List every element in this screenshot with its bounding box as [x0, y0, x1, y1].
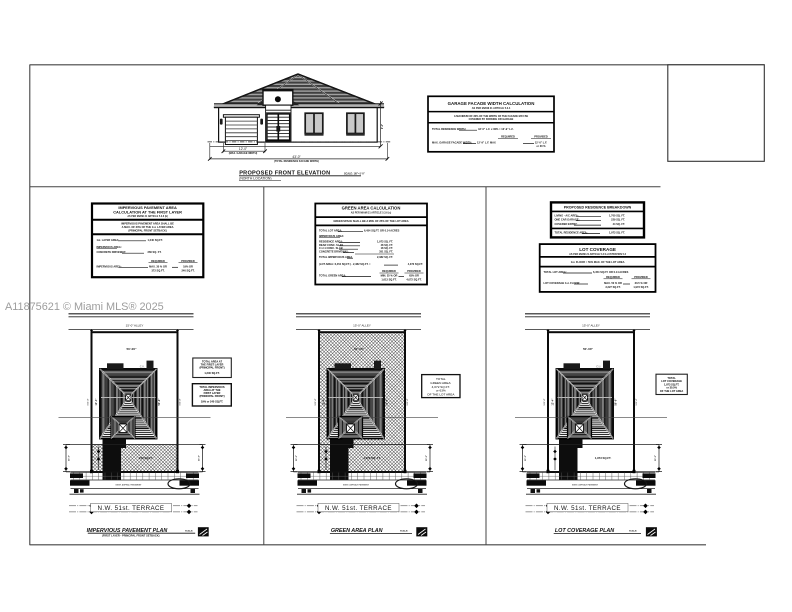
svg-text:LOT COVERAGE PLAN: LOT COVERAGE PLAN [555, 528, 614, 534]
svg-text:44 SQ. FT.: 44 SQ. FT. [613, 222, 626, 226]
svg-text:C.U.: C.U. [596, 366, 601, 369]
svg-text:25’-0”: 25’-0” [198, 455, 200, 461]
svg-text:1,973 SQ.FT.: 1,973 SQ.FT. [633, 285, 649, 289]
svg-text:IMPERVIOUS AREA:: IMPERVIOUS AREA: [97, 245, 122, 249]
svg-text:LIVING - A/C AREA:: LIVING - A/C AREA: [555, 213, 579, 217]
svg-text:PROVIDED: PROVIDED [634, 275, 648, 279]
svg-text:1,613 SQ.FT.: 1,613 SQ.FT. [381, 278, 397, 282]
svg-text:TOTAL RESIDENCE WIDTH:: TOTAL RESIDENCE WIDTH: [432, 127, 466, 131]
svg-text:REQUIRED: REQUIRED [606, 275, 620, 279]
svg-text:15’-0” ALLEY: 15’-0” ALLEY [126, 324, 144, 328]
svg-text:6,454 SQ.FT. OR 0.14 ACRES: 6,454 SQ.FT. OR 0.14 ACRES [593, 270, 629, 274]
svg-text:C.U.: C.U. [140, 366, 145, 369]
svg-text:SCALE:: SCALE: [629, 529, 637, 532]
svg-text:MAX. GARAGE FACADE WIDTH:: MAX. GARAGE FACADE WIDTH: [432, 141, 472, 145]
svg-text:6,454 SQ.FT. OR 0.14 ACRES: 6,454 SQ.FT. OR 0.14 ACRES [364, 229, 400, 233]
svg-text:LOT COVERAGE: LOT COVERAGE [579, 247, 616, 252]
svg-text:240 SQ.FT.: 240 SQ.FT. [139, 456, 153, 460]
svg-text:(TOTAL RESIDENCE FACADE WIDTH): (TOTAL RESIDENCE FACADE WIDTH) [274, 160, 319, 163]
svg-text:103’-4”: 103’-4” [87, 398, 90, 405]
svg-text:4,072 SQ. FT.: 4,072 SQ. FT. [363, 456, 380, 460]
svg-text:PROVIDED: PROVIDED [181, 259, 195, 263]
svg-text:MAX. 30 % OR: MAX. 30 % OR [149, 264, 167, 268]
svg-text:COVERED BY PARKING OR GARAGE: COVERED BY PARKING OR GARAGE [469, 118, 514, 121]
svg-text:PROVIDED: PROVIDED [534, 135, 548, 139]
svg-text:TOTAL LOT AREA:: TOTAL LOT AREA: [319, 229, 342, 233]
svg-text:240 SQ.FT.: 240 SQ.FT. [181, 268, 194, 272]
svg-text:C.U-1 CONC. SLAB: C.U-1 CONC. SLAB [319, 246, 343, 250]
svg-text:1,240 SQ.FT.: 1,240 SQ.FT. [204, 371, 220, 375]
svg-text:372 SQ.FT.: 372 SQ.FT. [151, 268, 164, 272]
svg-text:103’-4”: 103’-4” [406, 398, 409, 405]
svg-text:50’-00”: 50’-00” [126, 347, 137, 351]
svg-text:REQUIRED: REQUIRED [382, 269, 396, 273]
svg-text:MIN. 25 % OR: MIN. 25 % OR [381, 274, 398, 278]
svg-text:TOTAL LOT AREA:: TOTAL LOT AREA: [544, 270, 567, 274]
svg-text:25’-0”: 25’-0” [655, 455, 657, 461]
svg-text:1,973 SQ. FT.: 1,973 SQ. FT. [377, 239, 393, 243]
svg-text:OF THE LOT AREA: OF THE LOT AREA [660, 389, 684, 393]
svg-text:12’-4”: 12’-4” [551, 398, 554, 406]
svg-text:COVERED ENTRY:: COVERED ENTRY: [555, 222, 578, 226]
svg-text:15’-0” ALLEY: 15’-0” ALLEY [582, 324, 600, 328]
svg-text:REQUIRED: REQUIRED [151, 259, 165, 263]
svg-text:229 SQ. FT.: 229 SQ. FT. [611, 218, 625, 222]
svg-text:12’-4”: 12’-4” [95, 398, 98, 406]
svg-text:63% OR: 63% OR [409, 274, 419, 278]
svg-text:PROPOSED RESIDENCE BREAKDOWN: PROPOSED RESIDENCE BREAKDOWN [564, 205, 632, 209]
svg-text:SCALE:: SCALE: [185, 529, 193, 532]
svg-text:TOTAL IMPERVIOUS AREA: TOTAL IMPERVIOUS AREA [319, 255, 352, 259]
svg-text:50’-00”: 50’-00” [354, 347, 365, 351]
svg-text:25’-0”: 25’-0” [68, 455, 70, 461]
svg-text:TOTAL RESIDENCE AREA:: TOTAL RESIDENCE AREA: [555, 231, 588, 235]
svg-text:MAX. 50 % OR: MAX. 50 % OR [604, 281, 622, 285]
svg-text:OF THE LOT AREA: OF THE LOT AREA [427, 392, 455, 396]
svg-text:N.W. 51st. TERRACE: N.W. 51st. TERRACE [325, 505, 392, 512]
svg-text:50’-00”: 50’-00” [583, 347, 594, 351]
svg-text:or 30 %: or 30 % [536, 144, 546, 148]
svg-text:CONCRETE DRIVEWAY:: CONCRETE DRIVEWAY: [319, 250, 349, 254]
svg-text:12’-4”: 12’-4” [322, 398, 325, 406]
svg-text:EXIST. ASPHALT PAVEMENT: EXIST. ASPHALT PAVEMENT [116, 483, 143, 486]
svg-text:(PRINCIPAL FRONT SETBACK): (PRINCIPAL FRONT SETBACK) [128, 228, 167, 232]
svg-text:4,072 SQ.FT.: 4,072 SQ.FT. [408, 262, 424, 266]
svg-text:103’-4”: 103’-4” [543, 398, 546, 405]
svg-text:1st. FLOOR = 50% MAX. OF THE L: 1st. FLOOR = 50% MAX. OF THE LOT AREA [571, 260, 625, 264]
svg-text:1,973 SQ. FT.: 1,973 SQ. FT. [609, 231, 625, 235]
svg-text:(MAX. GARAGE WIDTH): (MAX. GARAGE WIDTH) [229, 152, 258, 155]
svg-text:A11875621 © Miami MLS® 2025: A11875621 © Miami MLS® 2025 [5, 301, 164, 313]
svg-text:1st. LAYER AREA:: 1st. LAYER AREA: [97, 238, 120, 242]
svg-text:103’-4”: 103’-4” [314, 398, 317, 405]
svg-text:REQUIRED: REQUIRED [501, 135, 515, 139]
svg-text:EXIST. ASPHALT PAVEMENT: EXIST. ASPHALT PAVEMENT [343, 483, 370, 486]
svg-text:AS PER MIAMI 21 ARTICLE 5.3.4: AS PER MIAMI 21 ARTICLE 5.3.4 [472, 107, 511, 110]
svg-text:18 SQ. FT.: 18 SQ. FT. [381, 246, 394, 250]
svg-text:9’-4”: 9’-4” [381, 123, 384, 129]
svg-text:IMPERVIOUS AREA:: IMPERVIOUS AREA: [319, 234, 344, 238]
svg-text:260 SQ. FT.: 260 SQ. FT. [148, 250, 162, 254]
svg-text:GARAGE FACADE WIDTH CALCULATIO: GARAGE FACADE WIDTH CALCULATION [448, 101, 535, 106]
svg-text:25’-0”: 25’-0” [426, 455, 428, 461]
svg-text:REAR CONC. SLAB: REAR CONC. SLAB [319, 243, 343, 247]
svg-text:ONE CAR GARAGE:: ONE CAR GARAGE: [555, 218, 580, 222]
svg-text:A MAX. OF 30% OF THE 1st. LAYE: A MAX. OF 30% OF THE 1st. LAYER AREA [122, 225, 174, 229]
svg-text:GREEN AREA CALCULATION: GREEN AREA CALCULATION [342, 206, 401, 211]
svg-text:50’-0”: 50’-0” [615, 398, 618, 406]
svg-text:103’-4”: 103’-4” [635, 398, 638, 405]
svg-text:N.W. 51st. TERRACE: N.W. 51st. TERRACE [554, 505, 621, 512]
svg-text:N.W. 51st. TERRACE: N.W. 51st. TERRACE [98, 505, 165, 512]
svg-text:PROVIDED: PROVIDED [407, 269, 421, 273]
svg-text:AS PER MIAMI 21 ARTICLE 5.3.6: AS PER MIAMI 21 ARTICLE 5.3.6 (b) [127, 215, 168, 218]
svg-text:SCALE:: SCALE: [400, 529, 408, 532]
svg-text:(FIRST LAYER - PRINCIPAL FRONT: (FIRST LAYER - PRINCIPAL FRONT SETBACK) [102, 534, 160, 538]
svg-text:48 SQ. FT.: 48 SQ. FT. [381, 243, 394, 247]
svg-text:15’-0” ALLEY: 15’-0” ALLEY [353, 324, 371, 328]
svg-text:351 SQ. FT.: 351 SQ. FT. [379, 250, 393, 254]
svg-text:2,382 SQ. FT.: 2,382 SQ. FT. [377, 255, 393, 259]
svg-text:30.5 % OR: 30.5 % OR [635, 281, 648, 285]
svg-text:GREEN SPACE SHALL BE A MIN. OF: GREEN SPACE SHALL BE A MIN. OF 25% OF TH… [333, 219, 408, 223]
svg-text:43’-0” L.F. x 30% = 12’-: 43’-0” L.F. x 30% = 12’-9” L.F. [478, 127, 514, 131]
svg-text:(LOT AREA: 6,454 SQ.FT.) - 2,3: (LOT AREA: 6,454 SQ.FT.) - 2,382 SQ.FT. … [319, 262, 371, 266]
svg-text:25’-0”: 25’-0” [525, 455, 527, 461]
svg-text:AS PER MIAMI 21 ARTICLE 5.3.6: AS PER MIAMI 21 ARTICLE 5.3.6 (c) [351, 212, 392, 215]
svg-text:1,700 SQ. FT.: 1,700 SQ. FT. [609, 213, 625, 217]
svg-text:4,072 SQ.FT.: 4,072 SQ.FT. [406, 278, 422, 282]
svg-text:25’-0”: 25’-0” [296, 455, 298, 461]
svg-text:GREEN AREA PLAN: GREEN AREA PLAN [331, 528, 383, 534]
svg-text:1,240 SQ.FT.: 1,240 SQ.FT. [148, 238, 164, 242]
svg-text:50’-0”: 50’-0” [158, 398, 161, 406]
svg-text:RESIDENCE AREA:: RESIDENCE AREA: [319, 239, 343, 243]
svg-text:(NORTH LOCATION): (NORTH LOCATION) [239, 176, 271, 180]
svg-text:AS PER MIAMI 21 ARTICLE 5.3 IL: AS PER MIAMI 21 ARTICLE 5.3 ILLUSTRATION… [569, 253, 627, 256]
svg-text:19% or 240 SQ.FT.: 19% or 240 SQ.FT. [201, 399, 224, 403]
svg-text:1,973 SQ.FT.: 1,973 SQ.FT. [595, 456, 612, 460]
svg-text:43’-0”: 43’-0” [292, 155, 300, 159]
svg-text:12’-0”: 12’-0” [239, 147, 247, 151]
svg-text:50’-0”: 50’-0” [386, 398, 389, 406]
svg-text:EXIST. ASPHALT PAVEMENT: EXIST. ASPHALT PAVEMENT [572, 483, 599, 486]
svg-text:IMPERVIOUS PAVEMENT AREA SHALL: IMPERVIOUS PAVEMENT AREA SHALL BE [121, 222, 174, 226]
svg-text:19% OR: 19% OR [183, 264, 193, 268]
svg-text:C.U.: C.U. [367, 366, 372, 369]
svg-text:103’-4”: 103’-4” [179, 398, 182, 405]
svg-text:IMPERVIOUS AREA:: IMPERVIOUS AREA: [97, 264, 122, 268]
svg-text:TOTAL GREEN AREA:: TOTAL GREEN AREA: [319, 274, 346, 278]
svg-text:CONCRETE DRIVEWAY:: CONCRETE DRIVEWAY: [97, 250, 127, 254]
svg-text:CALCULATION AT THE FIRST LAYER: CALCULATION AT THE FIRST LAYER [113, 209, 182, 214]
svg-text:12’-9” L.F. MAX: 12’-9” L.F. MAX [477, 141, 496, 145]
svg-text:SCALE: 1/8”=1’-0”: SCALE: 1/8”=1’-0” [344, 173, 366, 176]
svg-text:3,227 SQ.FT.: 3,227 SQ.FT. [605, 285, 621, 289]
svg-text:LOT COVERAGE 1st. FLOOR:: LOT COVERAGE 1st. FLOOR: [544, 281, 581, 285]
svg-text:(PRINCIPAL FRONT): (PRINCIPAL FRONT) [199, 394, 224, 398]
svg-text:(PRINCIPAL FRONT): (PRINCIPAL FRONT) [199, 365, 224, 369]
